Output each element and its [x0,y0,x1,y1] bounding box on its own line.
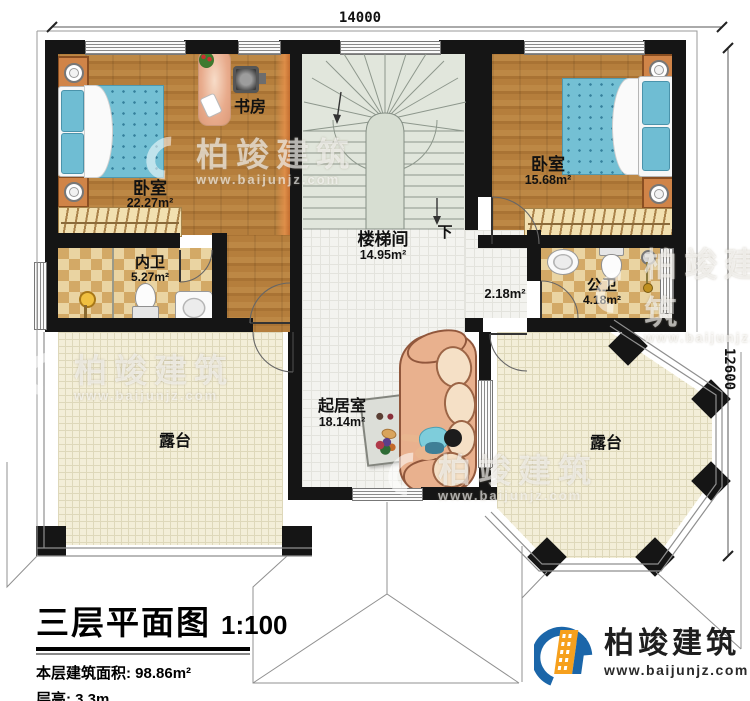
room-area-ensuite-bath: 5.27m² [114,271,186,284]
room-area-living: 18.14m² [299,416,385,429]
shower-knob [643,283,653,293]
room-label-terrace-right: 露台 [581,436,631,453]
wall [439,40,524,54]
wardrobe-rod [61,222,178,224]
floor-area-label: 本层建筑面积: [36,665,131,682]
shower-head-icon [641,250,656,265]
room-label-living: 起居室 [300,399,384,416]
room-area-hallway: 2.18m² [470,287,540,301]
flower-bouquet-icon [372,435,398,458]
window [85,41,186,55]
window [238,41,281,55]
drawing-scale: 1:100 [221,610,288,641]
room-area-stairwell: 14.95m² [333,249,433,262]
floorplan-canvas: 14000 12600 卧室 22.27m² 书房 卧室 15.68m² 楼梯间… [0,0,750,701]
monitor-arm [259,73,266,84]
nightstand [57,176,89,208]
room-area-public-bath: 4.18m² [566,294,638,307]
lamp-icon [64,63,84,83]
wall [212,233,227,325]
room-area-bedroom-right: 15.68m² [498,174,598,187]
sink [547,249,579,275]
floor-lamp-icon [79,291,96,308]
wall [478,54,492,197]
brand-website: www.baijunjz.com [604,662,749,678]
room-label-ensuite-bath: 内卫 [118,255,182,271]
room-label-study: 书房 [222,100,278,117]
stair-down-label: 下 [433,225,457,241]
window [34,262,47,330]
wall [527,230,541,281]
bed-pillow [642,81,670,125]
floor-height-label: 层高: [36,691,71,701]
wall [479,332,491,380]
wall [465,40,478,230]
dimension-top: 14000 [320,11,400,26]
window [478,380,493,468]
bed-quilt [612,78,640,175]
ensuite-partition [112,248,114,325]
wall [184,40,238,54]
brand-logo-icon [534,618,596,688]
window [660,248,674,314]
floor-area-value: 98.86m² [135,665,191,682]
brand-logo: 柏竣建筑 www.baijunjz.com [534,618,749,688]
wardrobe-rod [528,223,670,225]
wall [465,318,483,332]
page-title: 三层平面图 [36,596,211,644]
wall [279,40,340,54]
stairwell-floor [302,54,465,230]
wall [288,487,352,500]
floor-height-value: 3.3m [75,691,109,701]
window [524,41,645,55]
wall [478,235,672,248]
pillar [36,526,66,556]
plant-icon [199,52,214,68]
room-label-public-bath: 公卫 [570,278,634,294]
lamp-icon [649,184,669,204]
nightstand [642,177,675,209]
title-block: 三层平面图 1:100 本层建筑面积: 98.86m² 层高: 3.3m [36,596,336,701]
table-item [387,413,394,420]
title-underline-2 [36,653,250,655]
wall [45,318,253,332]
room-label-bedroom-right: 卧室 [498,156,598,174]
dimension-right: 12600 [721,339,736,399]
window [352,488,423,501]
wall [530,318,686,332]
wall [290,40,302,332]
wall [672,40,686,332]
bed-pillow [61,90,84,132]
bed-pillow [61,133,84,174]
computer-monitor [233,66,259,93]
wall [479,466,491,500]
pillar [282,526,312,556]
person-head [444,429,462,447]
lamp-icon [64,182,84,202]
shower-cord [646,262,648,284]
room-label-stairwell: 楼梯间 [333,231,433,249]
window [340,41,441,55]
room-label-terrace-left: 露台 [150,434,200,451]
brand-name: 柏竣建筑 [604,629,749,659]
room-area-bedroom-left: 22.27m² [100,197,200,210]
title-underline [36,647,250,651]
wardrobe [524,208,674,237]
person-shorts [425,442,444,454]
wall [45,233,180,248]
bed-pillow [642,127,670,171]
